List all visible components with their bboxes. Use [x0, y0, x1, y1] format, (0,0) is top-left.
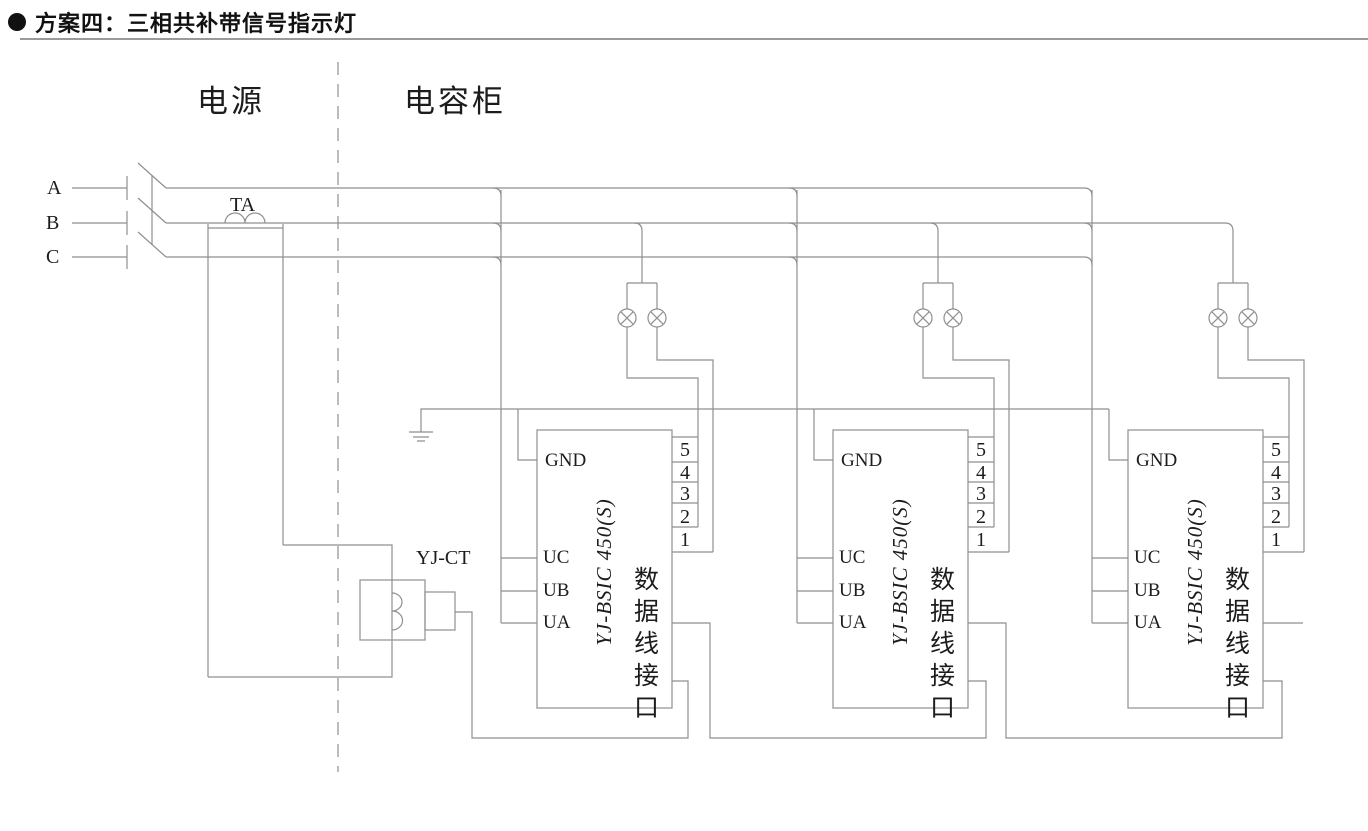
- voltage-pin-stubs: [1092, 558, 1128, 623]
- u2-model-label: YJ-BSIC 450(S): [888, 487, 912, 657]
- u2-terminal-2: 2: [971, 507, 991, 527]
- phase-a-label: A: [47, 178, 61, 198]
- indicator-lamp-icon: [914, 309, 962, 327]
- u1-terminal-5: 5: [675, 440, 695, 460]
- u3-pin-gnd: GND: [1136, 451, 1177, 470]
- yjct-connector: [425, 592, 455, 630]
- phase-incoming-lines: [72, 188, 127, 257]
- phase-tap-fillets: [1084, 223, 1092, 231]
- u3-pin-uc: UC: [1134, 548, 1160, 567]
- ta-current-transformer: [208, 213, 392, 677]
- voltage-pin-stubs: [501, 558, 537, 623]
- u2-pin-gnd: GND: [841, 451, 882, 470]
- lamp-feed: [923, 223, 953, 309]
- u2-port-label: 数据线接口: [926, 566, 954, 726]
- u1-terminal-4: 4: [675, 463, 695, 483]
- breaker-symbol: [127, 163, 166, 269]
- u3-terminal-5: 5: [1266, 440, 1286, 460]
- u1-port-label: 数据线接口: [630, 566, 658, 726]
- u2-terminal-4: 4: [971, 463, 991, 483]
- u2-pin-ua: UA: [839, 613, 866, 632]
- zone-label-power: 电源: [197, 86, 265, 117]
- phase-b-label: B: [46, 213, 59, 233]
- u3-model-label: YJ-BSIC 450(S): [1183, 487, 1207, 657]
- lamp-feed: [627, 223, 657, 309]
- indicator-lamp-icon: [1209, 309, 1257, 327]
- phase-tap-fillets: [789, 188, 797, 265]
- phase-c-label: C: [46, 247, 59, 267]
- u3-pin-ub: UB: [1134, 581, 1160, 600]
- u1-pin-ua: UA: [543, 613, 570, 632]
- ta-label: TA: [230, 195, 255, 215]
- lamp-feed: [1218, 223, 1248, 309]
- voltage-pin-stubs: [797, 558, 833, 623]
- phase-c-line: [166, 257, 1092, 265]
- u1-terminal-1: 1: [675, 530, 695, 550]
- u1-pin-gnd: GND: [545, 451, 586, 470]
- u3-port-label: 数据线接口: [1221, 566, 1249, 726]
- u2-pin-ub: UB: [839, 581, 865, 600]
- u3-terminal-1: 1: [1266, 530, 1286, 550]
- u3-terminal-3: 3: [1266, 484, 1286, 504]
- u2-terminal-3: 3: [971, 484, 991, 504]
- gnd-drop: [814, 409, 833, 460]
- u1-model-label: YJ-BSIC 450(S): [592, 487, 616, 657]
- indicator-lamp-icon: [618, 309, 666, 327]
- u2-terminal-1: 1: [971, 530, 991, 550]
- phase-tap-fillets: [493, 188, 501, 265]
- u3-terminal-2: 2: [1266, 507, 1286, 527]
- wiring-diagram-page: 方案四：三相共补带信号指示灯: [0, 0, 1368, 831]
- u1-pin-uc: UC: [543, 548, 569, 567]
- earth-ground-icon: [409, 432, 433, 441]
- u1-pin-ub: UB: [543, 581, 569, 600]
- gnd-drop: [518, 409, 537, 460]
- u1-terminal-2: 2: [675, 507, 695, 527]
- gnd-drop: [1109, 409, 1128, 460]
- u2-terminal-5: 5: [971, 440, 991, 460]
- schematic-canvas: [0, 0, 1368, 831]
- u2-pin-uc: UC: [839, 548, 865, 567]
- zone-label-capacitor: 电容柜: [404, 86, 506, 117]
- u1-terminal-3: 3: [675, 484, 695, 504]
- ground-bus: [409, 409, 1109, 441]
- phase-a-line: [166, 188, 1092, 196]
- u3-terminal-4: 4: [1266, 463, 1286, 483]
- u3-pin-ua: UA: [1134, 613, 1161, 632]
- phase-bus-lines: [166, 188, 1225, 265]
- yjct-label: YJ-CT: [416, 548, 470, 568]
